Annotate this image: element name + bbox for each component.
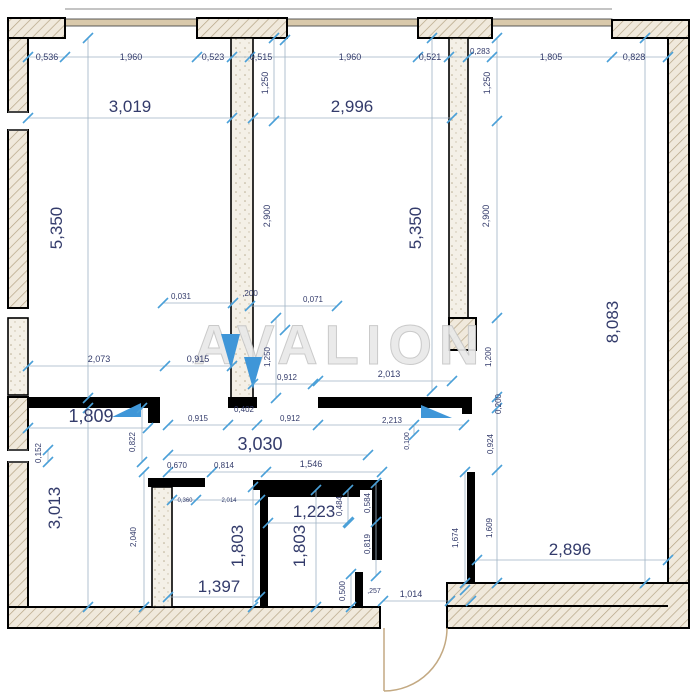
dimension-label: 0,402 — [234, 405, 255, 414]
dimension-label: 0,912 — [280, 414, 301, 423]
dimension-label: 1,960 — [120, 52, 143, 62]
dimension-label: 2,213 — [382, 416, 403, 425]
dimension-label: 0,822 — [128, 431, 137, 452]
dimension-label: 3,030 — [237, 434, 282, 454]
dimension-label: 0,915 — [188, 414, 209, 423]
dimension-label: 0,031 — [171, 292, 192, 301]
dimension-label: 2,013 — [378, 369, 401, 379]
dimension-label: 0,828 — [623, 52, 646, 62]
dimension-label: ,257 — [367, 588, 381, 595]
dimension-label: 0,670 — [167, 461, 188, 470]
dimension-label: 0,515 — [250, 52, 273, 62]
dimension-label: 1,250 — [263, 346, 272, 367]
dimension-label: 0,200 — [494, 393, 503, 414]
dimension-label: 3,013 — [45, 487, 64, 530]
dimension-label: 2,073 — [88, 354, 111, 364]
dimension-label: 3,019 — [109, 97, 152, 116]
dimension-label: 1,014 — [400, 589, 423, 599]
dimension-label: 0,915 — [187, 354, 210, 364]
dimension-label: 0,360 — [177, 498, 193, 504]
dimension-label: 1,250 — [260, 72, 270, 95]
window-band — [65, 9, 612, 26]
dimension-label: 0,484 — [335, 495, 344, 516]
dimension-label: 0,924 — [486, 433, 495, 454]
dimension-label: 1,803 — [290, 525, 309, 568]
dimension-label: 0,819 — [363, 533, 372, 554]
floor-plan-page: AVALION 0,5361,9600,5230,5151,9600,5210,… — [0, 0, 697, 700]
dimension-label: 0,100 — [404, 432, 411, 450]
dimension-label: 0,500 — [338, 580, 347, 601]
dimension-label: 8,083 — [603, 301, 622, 344]
dimension-label: 5,350 — [47, 207, 66, 250]
dimension-label: 1,609 — [485, 517, 494, 538]
floor-plan-drawing: AVALION 0,5361,9600,5230,5151,9600,5210,… — [0, 0, 697, 700]
dimension-label: 0,152 — [34, 442, 43, 463]
dimension-label: 5,350 — [406, 207, 425, 250]
dimension-label: 0,912 — [277, 373, 298, 382]
dimension-label: 2,900 — [262, 205, 272, 228]
dimension-label: 1,546 — [300, 459, 323, 469]
dimension-label: 2,996 — [331, 97, 374, 116]
dimension-label: 1,250 — [482, 72, 492, 95]
dimension-label: 0,536 — [36, 52, 59, 62]
dimension-label: 0,071 — [303, 295, 324, 304]
dimension-label: 1,805 — [540, 52, 563, 62]
dimension-label: 0,584 — [363, 492, 372, 513]
dimension-label: 0,283 — [470, 47, 491, 56]
dimension-label: 1,809 — [68, 406, 113, 426]
dimension-label: 2,040 — [129, 526, 138, 547]
dimension-label: 0,521 — [419, 52, 442, 62]
dimension-label: 0,523 — [202, 52, 225, 62]
dimension-label: 2,900 — [481, 205, 491, 228]
watermark-text: AVALION — [194, 313, 487, 376]
dimension-label: 1,397 — [198, 577, 241, 596]
entry-door — [384, 628, 447, 691]
dimension-label: 1,223 — [293, 502, 336, 521]
dimension-label: 0,814 — [214, 461, 235, 470]
dimension-label: ,200 — [242, 289, 258, 298]
dimension-label: 1,960 — [339, 52, 362, 62]
dimension-label: 2,896 — [549, 540, 592, 559]
door-swing-arc — [384, 628, 447, 691]
dimension-label: 1,803 — [228, 525, 247, 568]
dimension-label: 1,674 — [451, 527, 460, 548]
dimension-label: 1,200 — [484, 346, 493, 367]
dimension-label: 2,014 — [221, 498, 237, 504]
